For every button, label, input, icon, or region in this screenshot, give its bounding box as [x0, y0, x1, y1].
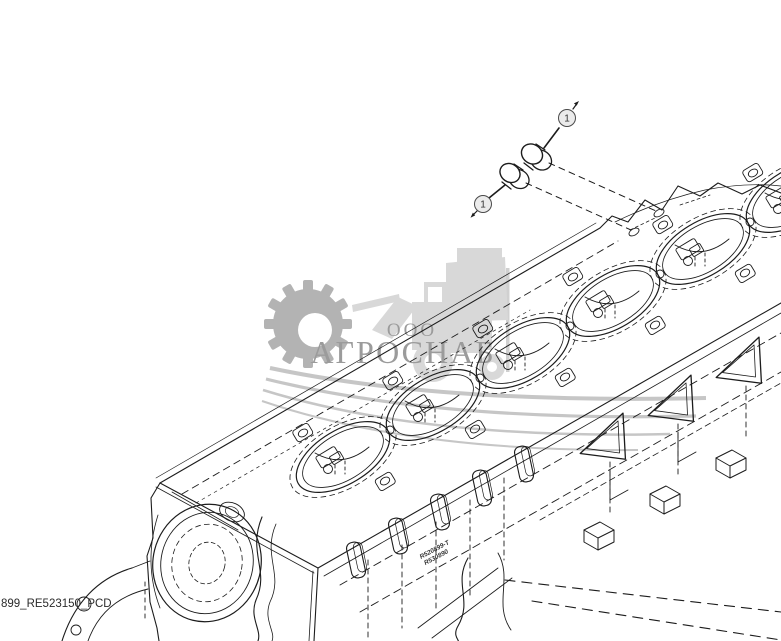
callout-balloon-1-lower[interactable]: 1: [471, 185, 506, 218]
parts-diagram: ООО АГРОСНАБ: [0, 0, 781, 641]
cup-plug-part-upper[interactable]: [518, 140, 556, 174]
part-number-label: 899_RE523150_PCD: [1, 598, 112, 610]
callout-number: 1: [480, 200, 486, 211]
watermark-company-name: АГРОСНАБ: [310, 334, 495, 370]
callout-balloon-1-upper[interactable]: 1: [544, 101, 579, 148]
watermark-logo: ООО АГРОСНАБ: [262, 248, 706, 450]
parts-diagram-page: ООО АГРОСНАБ: [0, 0, 781, 641]
callout-group: 1 1: [471, 101, 666, 238]
callout-number: 1: [564, 114, 570, 125]
